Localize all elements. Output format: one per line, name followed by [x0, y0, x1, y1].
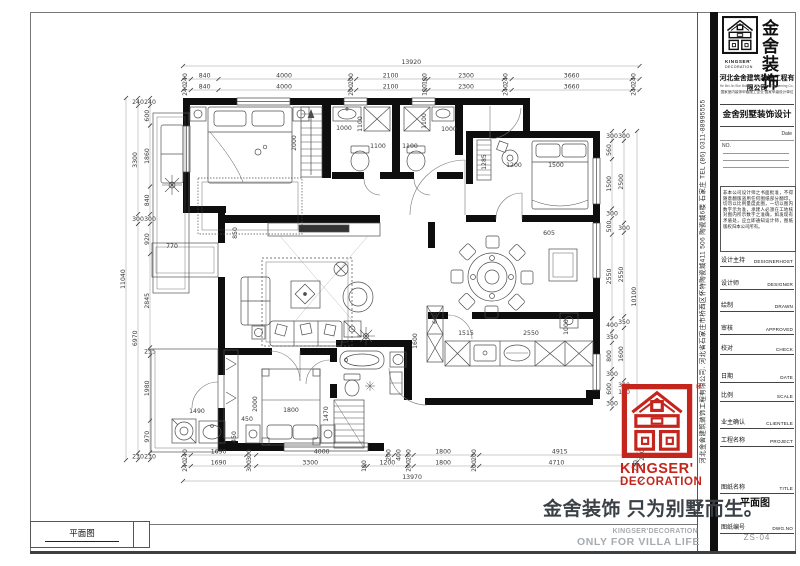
- dim-label: 2550: [618, 267, 625, 283]
- no-label: NO.: [722, 143, 731, 149]
- dim-label: 1515: [458, 330, 474, 337]
- dim-label: 200: [348, 84, 355, 96]
- row-label-cn: 审核: [721, 323, 733, 332]
- dim-label: 1500: [606, 176, 613, 192]
- dim-label: 200: [348, 73, 355, 85]
- dim-label: 240: [182, 460, 189, 472]
- signature-row: 工程名称PROJECT: [720, 432, 794, 447]
- dim-label: 3660: [564, 73, 580, 80]
- dim-label: 240: [132, 99, 144, 106]
- dim-label: 1980: [144, 380, 151, 396]
- single-sofa: [241, 277, 270, 325]
- window: [593, 223, 600, 278]
- dim-label: 1100: [402, 143, 418, 150]
- row-label-cn: 校对: [721, 343, 733, 352]
- dim-label: 4000: [276, 73, 292, 80]
- dim-label: 240: [182, 73, 189, 85]
- row-label-en: CHECK: [776, 347, 793, 352]
- dim-label: 300: [618, 133, 630, 140]
- dim-label: 2100: [383, 84, 399, 91]
- bath-a-door-arc: [364, 179, 380, 195]
- dim-label: 230: [132, 453, 144, 460]
- dim-label: 450: [241, 416, 253, 423]
- dim-label: 600: [432, 312, 439, 324]
- row-label-en: SCALE: [777, 394, 793, 399]
- dim-label: 1285: [481, 154, 488, 170]
- dim-label: 11040: [120, 269, 127, 289]
- dim-label: 1600: [618, 346, 625, 362]
- bath-b-door-arc: [414, 179, 430, 195]
- dim-label: 1690: [211, 460, 227, 467]
- balcony3-door-arc: [192, 382, 218, 408]
- dim-label: 970: [144, 431, 151, 443]
- company-qualification: 国家室内装饰甲级施工企业 国家甲级设计单位: [718, 90, 796, 95]
- dim-label: 840: [199, 73, 211, 80]
- dim-label: 1800: [283, 407, 299, 414]
- dim-label: 1000: [563, 319, 570, 335]
- dim-label: 300: [132, 216, 144, 223]
- dim-label: 200: [405, 460, 412, 472]
- brand-name-en2: DECORATION: [725, 65, 753, 69]
- row-label-cn: 业主确认: [721, 417, 745, 426]
- tv-projection-lines: [280, 236, 368, 320]
- long-sofa: [270, 321, 342, 346]
- signature-row: 设计师DESIGNER: [720, 275, 794, 290]
- window: [593, 354, 600, 390]
- dim-label: 2100: [383, 73, 399, 80]
- row-label-cn: 设计主持: [721, 255, 745, 264]
- dim-label: 1000: [336, 125, 352, 132]
- hall-door-arc: [410, 160, 465, 215]
- row-label-en: DRAWN: [775, 304, 793, 309]
- dim-label: 1500: [548, 162, 564, 169]
- dim-label: 3300: [302, 460, 318, 467]
- row-label-en: DATE: [780, 375, 793, 380]
- dim-label: 1200: [506, 162, 522, 169]
- brand-header: 金舍装饰 KINGSER' DECORATION: [722, 16, 794, 68]
- dim-label: 920: [144, 233, 151, 245]
- date-label: Date: [781, 131, 792, 137]
- bathroom-b: [404, 107, 454, 171]
- dim-label: 300: [606, 133, 618, 140]
- dim-label: 1200: [379, 460, 395, 467]
- project-series-title: 金舍别墅装饰设计: [718, 108, 796, 120]
- dim-label: 1690: [211, 449, 227, 456]
- red-wordmark-2: DECORATION: [620, 476, 702, 488]
- copyright-disclaimer: 非本公司设计师之书面批准，不得随意翻版盗用任何图纸部分翻印。切勿以比例量度此图，…: [720, 186, 796, 252]
- kingser-red-logo-block: ® KINGSER' DECORATION: [620, 384, 710, 494]
- dim-label: 840: [144, 194, 151, 206]
- signature-row: 图纸编号DWG.NO: [720, 519, 794, 534]
- dim-label: 6970: [132, 330, 139, 346]
- dim-label: 100: [422, 84, 429, 96]
- dining-table: [451, 236, 533, 318]
- dim-label: 350: [606, 334, 618, 341]
- row-label-en: PROJECT: [770, 439, 793, 444]
- signature-row: 审核APPROVED: [720, 320, 794, 335]
- washing-machine: [172, 419, 196, 443]
- dim-label: 200: [405, 449, 412, 461]
- bedroom2-bed: [532, 141, 588, 209]
- dim-label: 400: [395, 449, 402, 461]
- dim-label: 4710: [549, 460, 565, 467]
- slogan-en-small: KINGSER'DECORATION: [613, 528, 699, 535]
- square-side-table: [344, 321, 361, 337]
- row-label-cn: 工程名称: [721, 435, 745, 444]
- red-wordmark-1: KINGSER': [620, 461, 694, 477]
- dim-label: 450: [231, 431, 238, 443]
- dim-label: 2300: [458, 84, 474, 91]
- laundry-balcony: [151, 349, 218, 452]
- dim-label: 2000: [291, 135, 298, 151]
- row-label-cn: 设计师: [721, 278, 739, 287]
- dim-label: 800: [606, 350, 613, 362]
- signature-row: 设计主持DESIGNERHOST: [720, 252, 794, 267]
- drawing-name-box: 平面图: [30, 521, 150, 548]
- bedroom3-door-arc: [270, 351, 300, 381]
- window: [412, 98, 435, 105]
- dim-label: 350: [618, 319, 630, 326]
- dim-label: 1860: [144, 148, 151, 164]
- row-label-cn: 图纸名称: [721, 482, 745, 491]
- dim-label: 1100: [421, 113, 428, 129]
- row-label-en: DESIGNERHOST: [754, 259, 793, 264]
- dim-label: 240: [503, 73, 510, 85]
- dim-label: 300: [618, 225, 630, 232]
- dim-label: 850: [232, 227, 239, 239]
- dim-label: 300: [606, 210, 618, 217]
- dim-label: 300: [606, 371, 618, 378]
- staircase-bottom: [334, 400, 364, 448]
- slogan-en-large: ONLY FOR VILLA LIFE: [577, 536, 700, 548]
- stool: [252, 326, 265, 339]
- dim-label: 600: [606, 383, 613, 395]
- window: [593, 158, 600, 204]
- bath3-door-arc: [306, 360, 330, 384]
- dim-label: 2550: [606, 269, 613, 285]
- row-label-cn: 图纸编号: [721, 522, 745, 531]
- dim-label: 4000: [314, 449, 330, 456]
- dimensions-layer: 1392024084040002002100100230024036602402…: [120, 59, 650, 483]
- row-label-en: DESIGNER: [767, 282, 793, 287]
- signature-row: 日期DATE: [720, 368, 794, 383]
- row-label-cn: 比例: [721, 390, 733, 399]
- dim-label: 1490: [189, 408, 205, 415]
- staircase-top: [301, 107, 322, 177]
- master-bed: [208, 107, 292, 183]
- signature-row: 图纸名称TITLE: [720, 479, 794, 494]
- drawing-sheet: 1392024084040002002100100230024036602402…: [0, 0, 800, 566]
- signature-row: 绘制DRAWN: [720, 297, 794, 312]
- dim-label: 100: [422, 73, 429, 85]
- dim-label: 1600: [412, 333, 419, 349]
- row-label-cn: 日期: [721, 371, 733, 380]
- dim-label: 300: [606, 401, 618, 408]
- signature-row: 校对CHECK: [720, 340, 794, 355]
- dim-label: 605: [543, 230, 555, 237]
- dim-label: 255: [144, 349, 156, 356]
- kitchen-counter: [445, 341, 593, 366]
- row-label-en: APPROVED: [766, 327, 793, 332]
- dim-label: 600: [144, 110, 151, 122]
- signature-row: 业主确认CLIENTELE: [720, 414, 794, 429]
- drawing-name-label: 平面图: [45, 527, 119, 542]
- bedroom3-wardrobe: [224, 350, 238, 438]
- row-label-en: DWG.NO: [772, 526, 793, 531]
- dim-label: 2500: [618, 174, 625, 190]
- dim-label: 300: [144, 216, 156, 223]
- dim-label: 300: [246, 449, 253, 461]
- dim-label: 240: [144, 99, 156, 106]
- dim-label: 240: [631, 73, 638, 85]
- dim-label: 240: [631, 84, 638, 96]
- dim-label: 1800: [435, 449, 451, 456]
- dim-label: 240: [503, 84, 510, 96]
- dim-label: 1470: [323, 406, 330, 422]
- dim-label: 230: [144, 453, 156, 460]
- title-block: 金舍装饰 KINGSER' DECORATION 河北金舍建筑装饰工程有限公司 …: [718, 12, 796, 551]
- kingser-red-logo-icon: [620, 384, 694, 458]
- nightstand: [190, 107, 206, 121]
- bedroom2-door-arc: [496, 193, 522, 219]
- dim-label: 4915: [552, 449, 568, 456]
- balcony-plant: [162, 175, 182, 195]
- dim-label: 400: [606, 322, 618, 329]
- signature-row: 比例SCALE: [720, 387, 794, 402]
- furniture-layer: [162, 107, 593, 448]
- nightstand: [321, 425, 335, 443]
- row-label-en: TITLE: [779, 486, 793, 491]
- dim-label: 240: [182, 449, 189, 461]
- dim-label: 840: [199, 84, 211, 91]
- registered-trademark: ®: [696, 384, 701, 391]
- dim-label: 1100: [357, 116, 364, 132]
- dim-label: 3300: [132, 152, 139, 168]
- dim-label: 770: [166, 243, 178, 250]
- dim-label: 300: [246, 460, 253, 472]
- dim-label: 4000: [276, 84, 292, 91]
- brand-slogan: 金舍装饰 只为别墅而生。: [543, 494, 763, 521]
- dim-label: 1800: [435, 460, 451, 467]
- round-side-table: [334, 262, 348, 276]
- walls-layer: [183, 98, 600, 451]
- dim-label: 240: [182, 84, 189, 96]
- coffee-table: [291, 281, 320, 308]
- dim-label: 1100: [370, 143, 386, 150]
- dim-label: 100: [361, 460, 368, 472]
- row-label-en: CLIENTELE: [766, 421, 793, 426]
- brand-name-en: KINGSER': [725, 59, 752, 64]
- dim-label: 2000: [252, 396, 259, 412]
- row-label-cn: 绘制: [721, 300, 733, 309]
- window: [344, 98, 367, 105]
- dim-label: 3660: [564, 84, 580, 91]
- kingser-logo-icon: [722, 16, 758, 54]
- window: [237, 98, 290, 105]
- dim-label: 200: [471, 449, 478, 461]
- dim-label: 2845: [144, 293, 151, 309]
- round-chair: [343, 282, 373, 312]
- dim-label: 2300: [458, 73, 474, 80]
- dim-label: 2550: [523, 330, 539, 337]
- dim-label: 1000: [441, 126, 457, 133]
- sideboard: [549, 249, 577, 281]
- nightstand: [246, 425, 260, 443]
- dim-label: 200: [471, 460, 478, 472]
- dim-label: 500: [606, 220, 613, 232]
- dim-label: 13920: [401, 59, 421, 66]
- dim-label: 560: [606, 144, 613, 156]
- drawing-number: ZS-04: [718, 533, 796, 542]
- dim-label: 10100: [631, 287, 638, 307]
- dim-label: 13970: [402, 474, 422, 481]
